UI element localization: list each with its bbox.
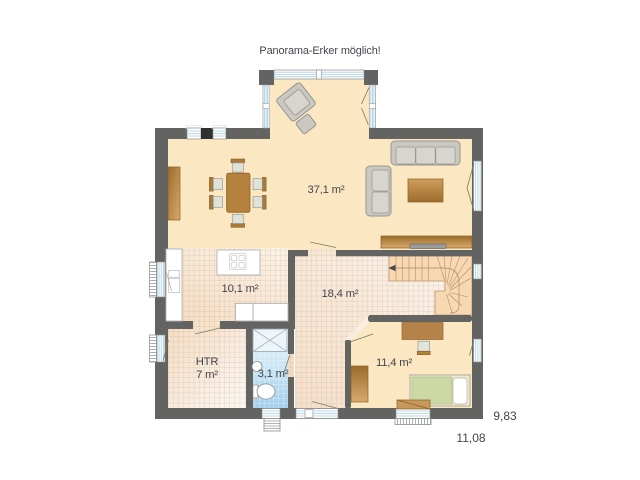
svg-text:9,83: 9,83 [493, 409, 517, 423]
svg-text:10,1 m²: 10,1 m² [222, 283, 259, 295]
svg-text:11,08: 11,08 [456, 431, 485, 445]
svg-text:HTR: HTR [196, 356, 219, 368]
svg-text:11,4 m²: 11,4 m² [376, 357, 412, 369]
svg-text:Panorama-Erker möglich!: Panorama-Erker möglich! [259, 45, 380, 57]
svg-text:18,4 m²: 18,4 m² [322, 288, 359, 300]
svg-text:7 m²: 7 m² [196, 369, 218, 381]
svg-text:3,1 m²: 3,1 m² [258, 368, 289, 380]
svg-text:37,1 m²: 37,1 m² [308, 184, 345, 196]
